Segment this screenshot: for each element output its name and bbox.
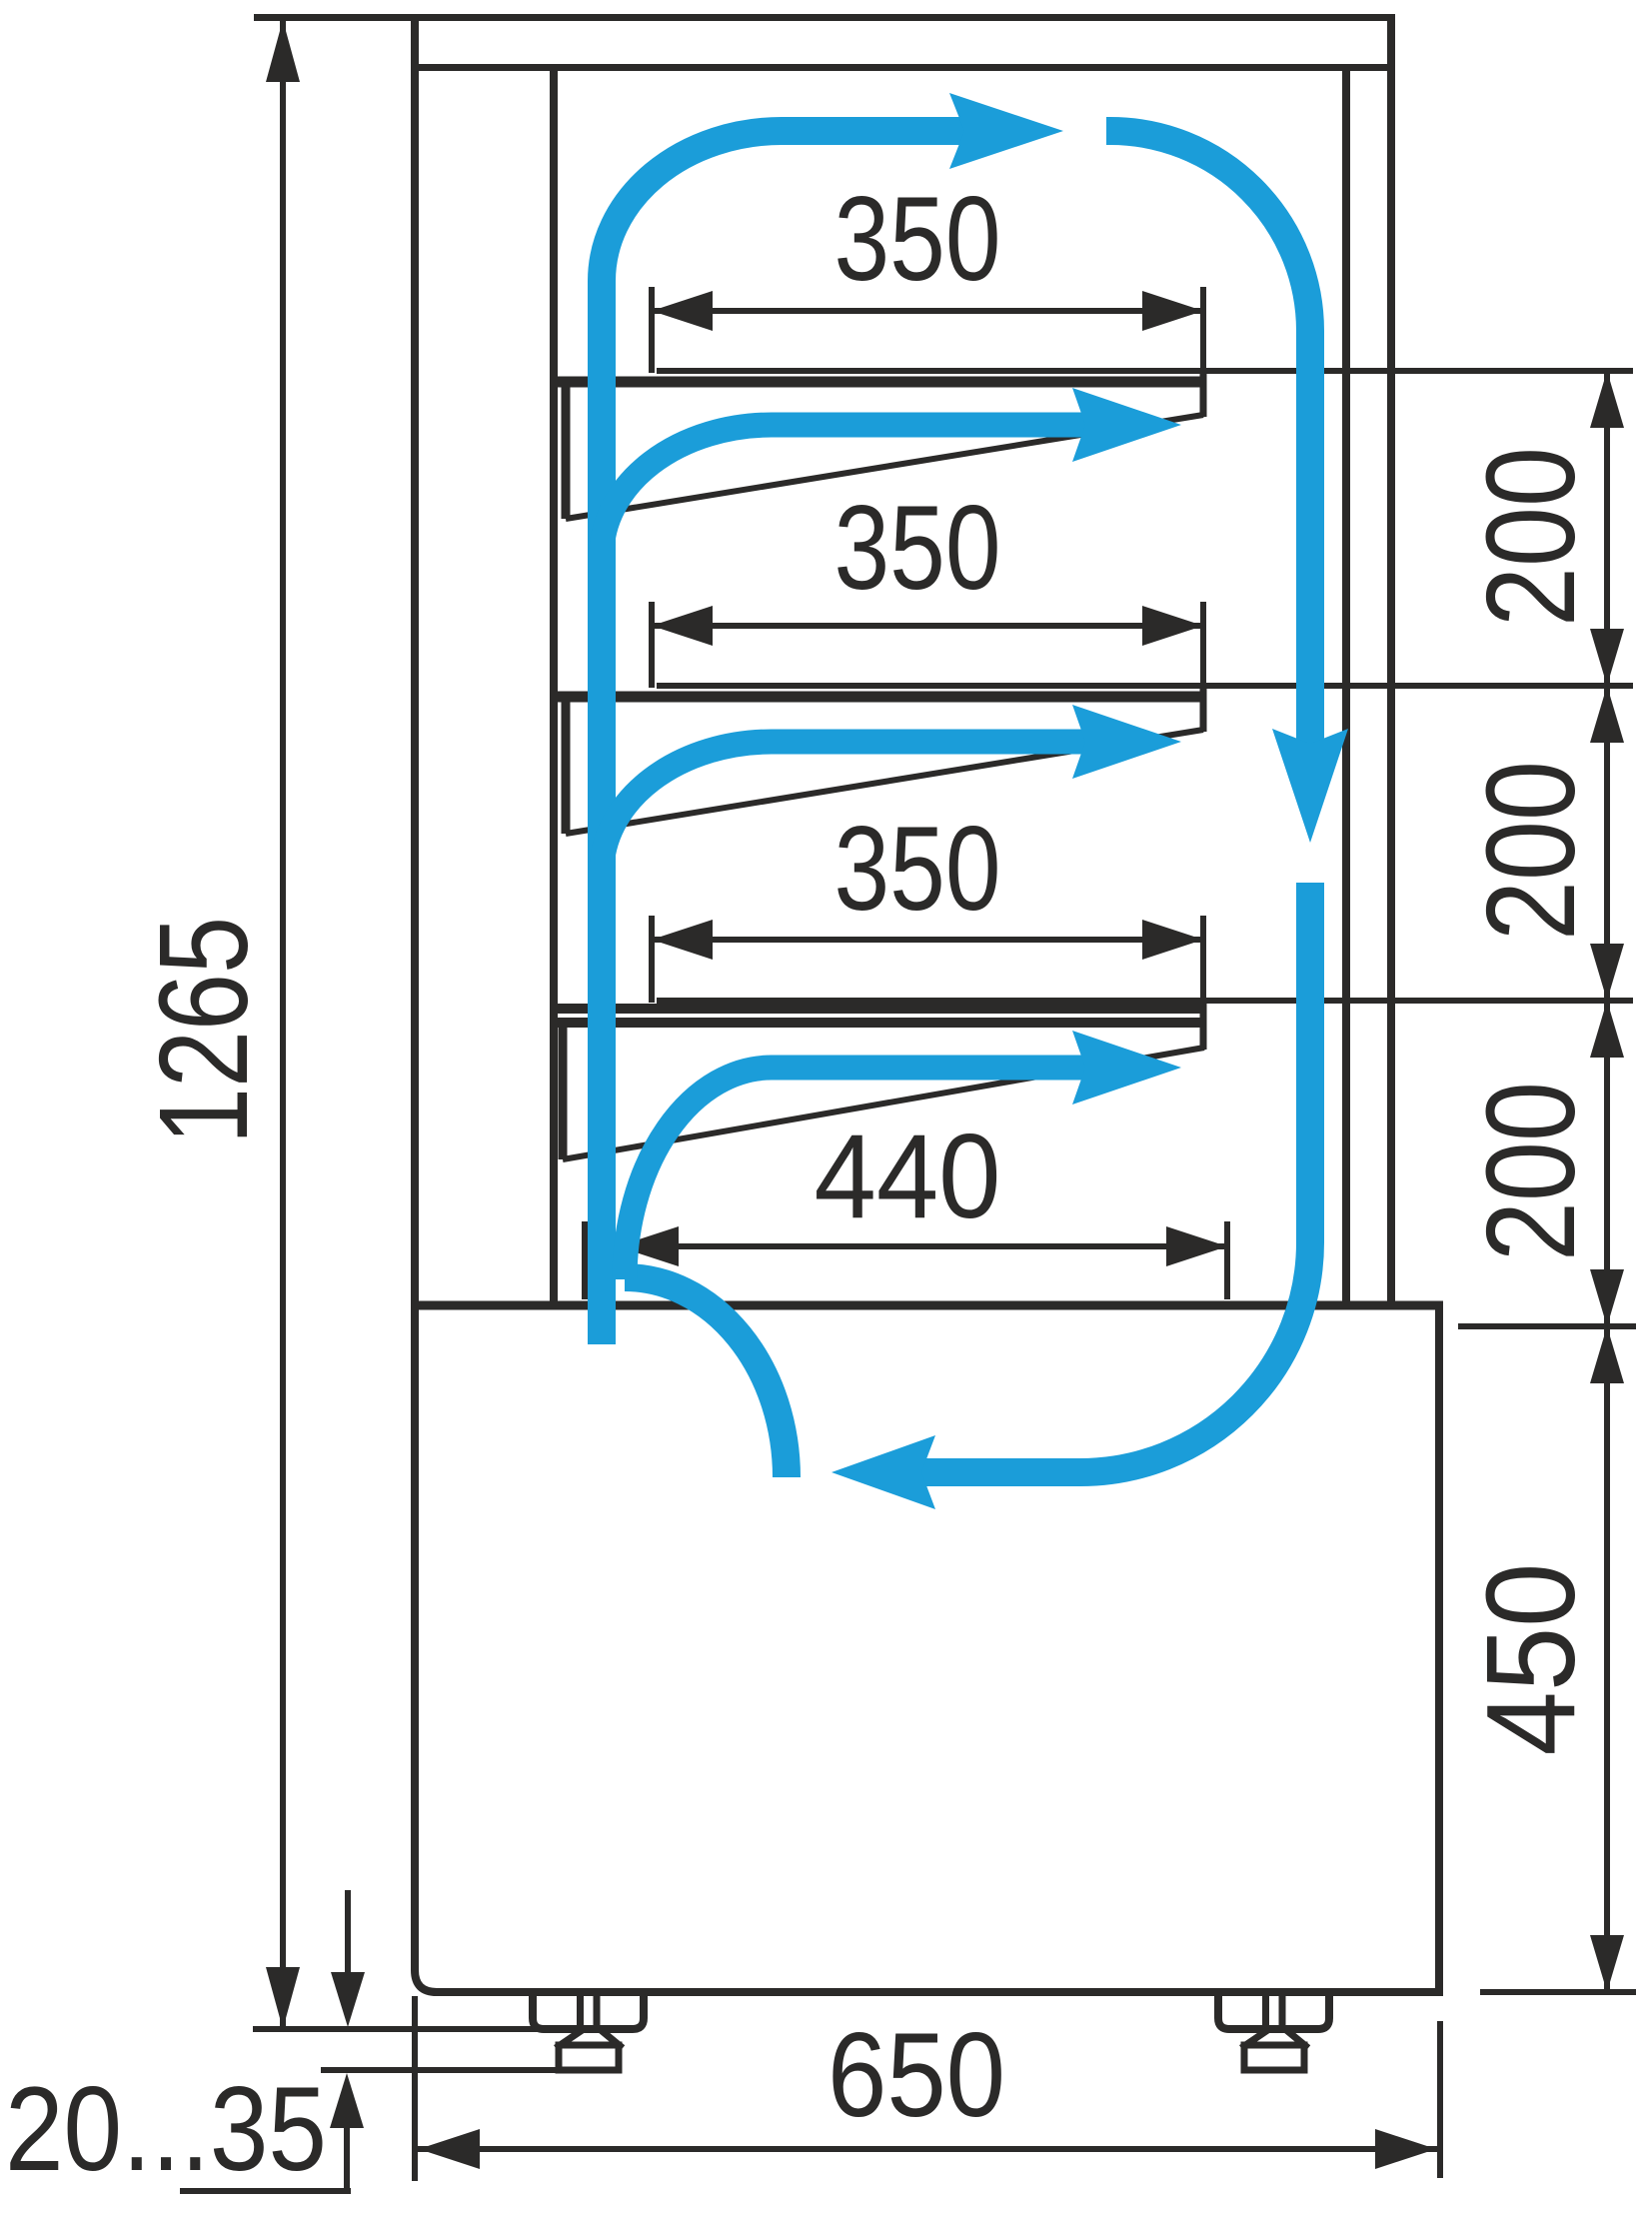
svg-text:200: 200 <box>1460 761 1601 941</box>
svg-text:1265: 1265 <box>133 917 274 1144</box>
svg-text:200: 200 <box>1460 1082 1601 1261</box>
svg-text:20...35: 20...35 <box>5 2062 327 2196</box>
svg-text:650: 650 <box>827 2008 1005 2142</box>
svg-text:200: 200 <box>1460 447 1601 627</box>
svg-text:350: 350 <box>834 481 1001 615</box>
svg-text:350: 350 <box>834 802 1001 936</box>
svg-text:350: 350 <box>834 172 1001 306</box>
svg-text:450: 450 <box>1460 1563 1601 1756</box>
svg-text:440: 440 <box>815 1109 1001 1243</box>
